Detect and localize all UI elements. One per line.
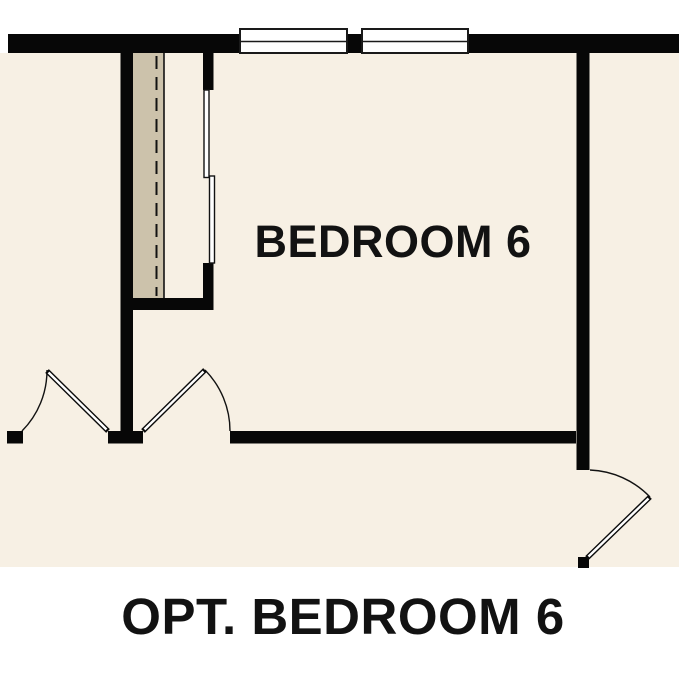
closet-bypass-panel-outer bbox=[204, 90, 209, 178]
room-label: BEDROOM 6 bbox=[254, 216, 531, 267]
floor-plan-canvas: BEDROOM 6 OPT. BEDROOM 6 bbox=[0, 0, 687, 687]
closet-door-jamb-top bbox=[203, 53, 214, 90]
wall-closet-bottom bbox=[121, 298, 214, 310]
window-symbol-left bbox=[240, 29, 347, 53]
plan-caption: OPT. BEDROOM 6 bbox=[121, 588, 564, 645]
wall-right bbox=[577, 34, 590, 470]
closet-bypass-panel-inner bbox=[210, 176, 215, 263]
floor-plan-page: BEDROOM 6 OPT. BEDROOM 6 bbox=[0, 0, 687, 687]
wall-bottom-left-stub bbox=[7, 431, 23, 444]
entry-door-jamb-stub bbox=[578, 557, 589, 568]
wall-bottom-bedroom bbox=[230, 431, 576, 444]
window-symbol-right bbox=[362, 29, 468, 53]
closet-shelf bbox=[132, 53, 164, 298]
wall-bottom-center-post bbox=[108, 431, 143, 444]
closet-door-jamb-bottom bbox=[203, 263, 214, 298]
wall-closet-left bbox=[121, 53, 134, 432]
